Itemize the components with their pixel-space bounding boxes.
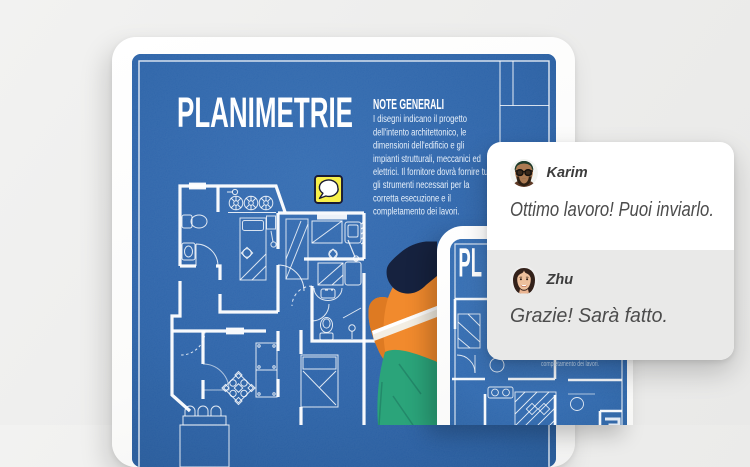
svg-text:impianti strutturali, meccanic: impianti strutturali, meccanici ed [373,153,481,164]
svg-text:corretta esecuzione e il: corretta esecuzione e il [373,192,451,203]
svg-text:gli strumenti necessari per la: gli strumenti necessari per la [373,179,470,190]
svg-text:elettrici. Il fornitore dovrà: elettrici. Il fornitore dovrà fornire tu… [373,166,494,177]
svg-text:dimensioni dell'edificio e gli: dimensioni dell'edificio e gli [373,139,464,150]
svg-text:dell'intento architettonico, l: dell'intento architettonico, le [373,126,466,137]
svg-text:PL: PL [458,239,482,285]
svg-text:PLANIMETRIE: PLANIMETRIE [177,90,353,137]
svg-text:completamento dei lavori.: completamento dei lavori. [373,205,459,216]
svg-text:completamento dei lavori.: completamento dei lavori. [541,360,599,368]
svg-text:NOTE GENERALI: NOTE GENERALI [373,97,444,113]
svg-text:I disegni indicano il progetto: I disegni indicano il progetto [373,113,467,124]
